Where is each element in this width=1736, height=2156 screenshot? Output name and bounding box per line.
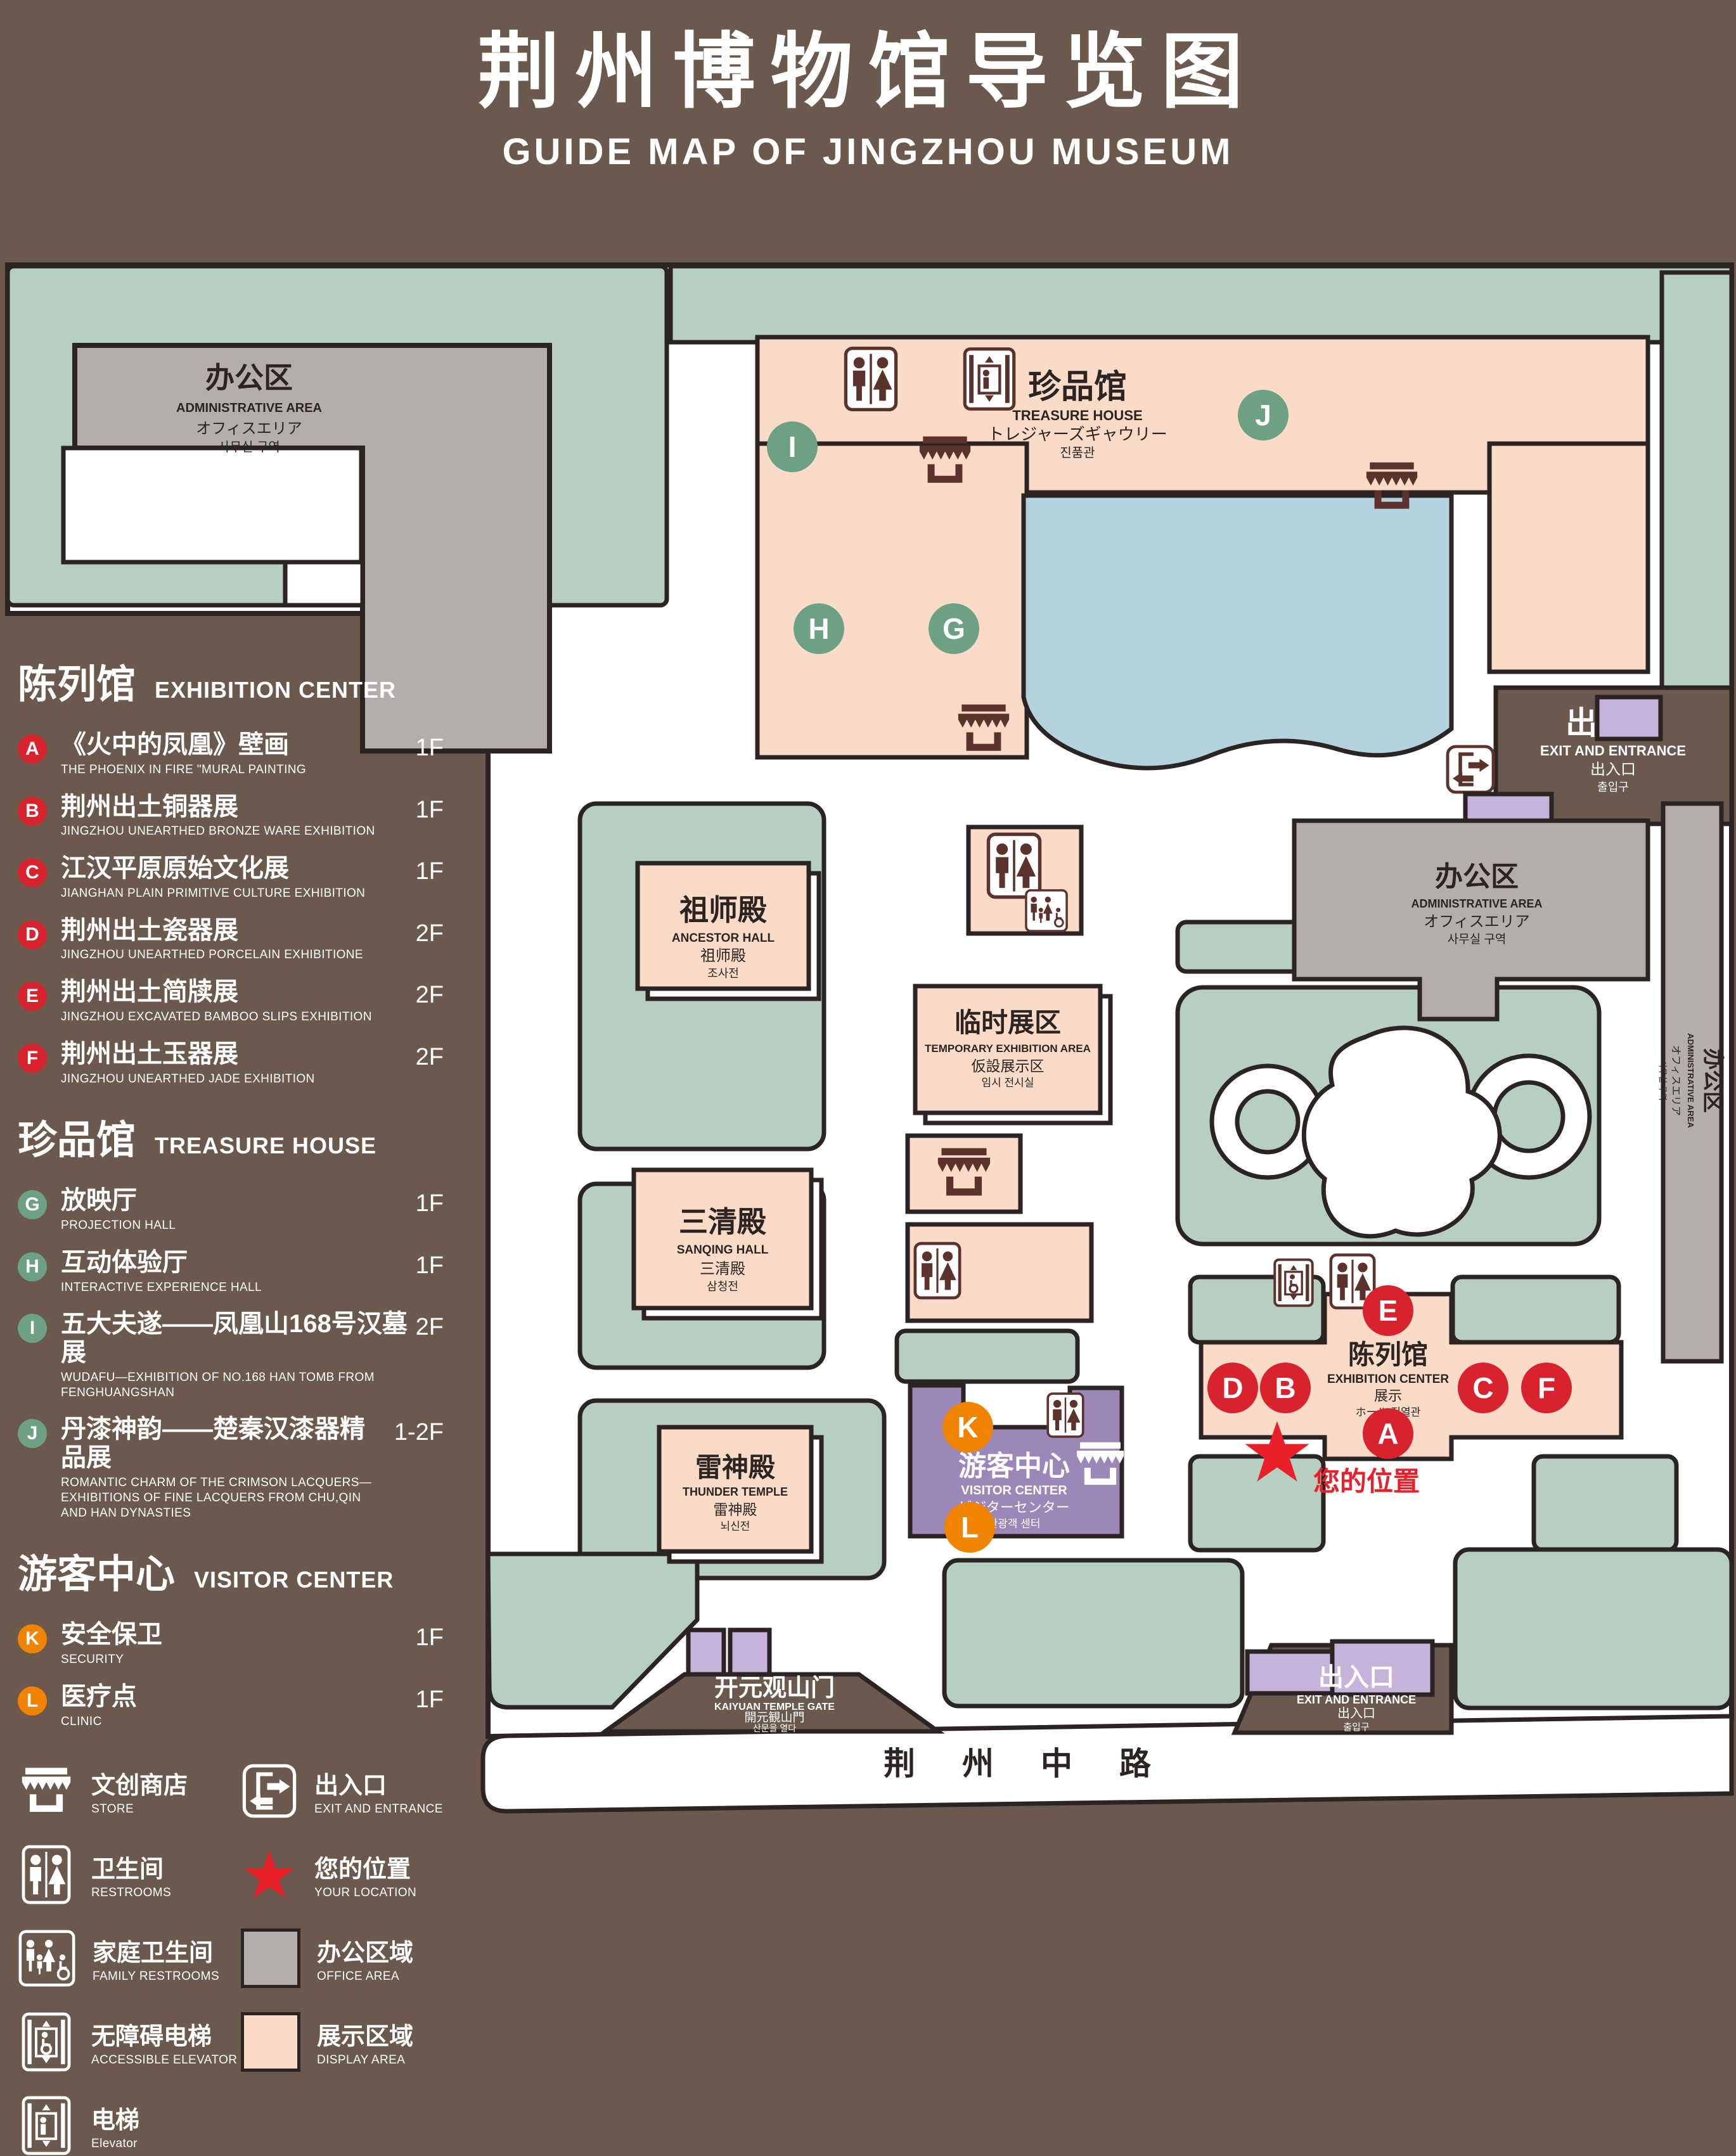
temp-exhibition-label-cn: 临时展区 (955, 1008, 1061, 1037)
marker-badge: F (18, 1044, 47, 1073)
item-cn: 荆州出土玉器展 (61, 1040, 409, 1068)
exit-s-label-en: EXIT AND ENTRANCE (1297, 1693, 1416, 1706)
legend-section-treasure-house: 珍品馆 TREASURE HOUSE (18, 1108, 444, 1165)
building-thunder-temple: 雷神殿 THUNDER TEMPLE 雷神殿 뇌신전 (659, 1427, 821, 1562)
building-restrooms-mid (968, 827, 1081, 934)
exhibition-center-label-en: EXHIBITION CENTER (1327, 1373, 1449, 1386)
legend-section-visitor-center: 游客中心 VISITOR CENTER (18, 1542, 444, 1599)
item-cn: 江汉平原原始文化展 (61, 854, 409, 883)
item-en: INTERACTIVE EXPERIENCE HALL (61, 1280, 409, 1295)
legend-symbols: 文创商店 STORE 出入口 EXIT AND ENTRANCE 卫生间 RES… (18, 1761, 444, 2156)
symbol-en: EXIT AND ENTRANCE (314, 1802, 443, 1816)
restroom-icon (915, 1243, 960, 1298)
symbol-en: FAMILY RESTROOMS (93, 1970, 219, 1984)
restroom-icon (845, 349, 896, 410)
section-title-cn: 珍品馆 (18, 1108, 136, 1165)
item-floor: 2F (409, 1314, 444, 1341)
item-en: JINGZHOU UNEARTHED PORCELAIN EXHIBITIONE (61, 947, 409, 963)
item-en: JINGZHOU UNEARTHED JADE EXHIBITION (61, 1072, 409, 1087)
item-en: THE PHOENIX IN FIRE "MURAL PAINTING (61, 762, 409, 778)
lawn-gate-right (944, 1560, 1242, 1706)
item-en: ROMANTIC CHARM OF THE CRIMSON LACQUERS—E… (61, 1475, 388, 1520)
gate-label-cn: 开元观山门 (714, 1675, 835, 1702)
item-floor: 1-2F (388, 1419, 444, 1446)
admin-nw-label-kr: 사무실 구역 (218, 440, 280, 454)
entrance-ne-label-kr: 출입구 (1597, 781, 1629, 793)
symbol-cn: 办公区域 (317, 1933, 413, 1968)
admin-e-label-jp: オフィスエリア (1424, 913, 1530, 930)
item-floor: 1F (409, 858, 444, 885)
location-star-icon (241, 1844, 298, 1905)
admin-e-label-kr: 사무실 구역 (1448, 932, 1507, 946)
legend-item-F: F 荆州出土玉器展 JINGZHOU UNEARTHED JADE EXHIBI… (18, 1040, 444, 1087)
exit-s-label-kr: 출입구 (1343, 1722, 1369, 1733)
item-en: WUDAFU—EXHIBITION OF NO.168 HAN TOMB FRO… (61, 1370, 409, 1401)
item-cn: 荆州出土瓷器展 (61, 916, 409, 945)
admin-e-label-en: ADMINISTRATIVE AREA (1411, 897, 1543, 910)
symbol-cn: 家庭卫生间 (93, 1933, 219, 1968)
treasure-house-label-kr: 진품관 (1060, 446, 1095, 460)
building-ancestor-hall: 祖师殿 ANCESTOR HALL 祖师殿 조사전 (638, 863, 819, 999)
thunder-temple-label-kr: 뇌신전 (721, 1520, 750, 1532)
accessible-elevator-icon (1275, 1260, 1312, 1306)
legend-symbol-accessible-elevator: 无障碍电梯 ACCESSIBLE ELEVATOR (18, 2012, 241, 2072)
courtyard-nw-2 (285, 562, 363, 605)
symbol-cn: 展示区域 (317, 2017, 413, 2051)
symbol-en: STORE (91, 1802, 188, 1816)
item-floor: 1F (409, 1624, 444, 1652)
lake (1024, 496, 1451, 768)
item-cn: 荆州出土铜器展 (61, 793, 409, 821)
symbol-cn: 出入口 (314, 1766, 443, 1800)
admin-strip-label-kr: 사무실 구역 (1658, 1060, 1668, 1100)
ancestor-hall-label-cn: 祖师殿 (679, 894, 767, 927)
admin-strip-label-cn: 办公区 (1701, 1048, 1725, 1113)
display-area-swatch (241, 2012, 300, 2072)
item-cn: 医疗点 (61, 1683, 409, 1711)
svg-text:G: G (942, 612, 965, 645)
marker-badge: A (18, 735, 47, 764)
symbol-cn: 您的位置 (314, 1849, 416, 1884)
ancestor-hall-label-kr: 조사전 (707, 967, 739, 980)
lawn-top-strip (671, 266, 1732, 342)
sanqing-hall-label-cn: 三清殿 (679, 1205, 766, 1238)
symbol-en: RESTROOMS (91, 1886, 171, 1900)
courtyard-nw (63, 448, 361, 562)
entrance-ne-label-jp: 出入口 (1590, 761, 1636, 778)
ancestor-hall-label-jp: 祖师殿 (700, 947, 746, 965)
title-chinese: 荆州博物馆导览图 (0, 5, 1736, 124)
svg-text:E: E (1379, 1294, 1398, 1327)
item-floor: 2F (409, 982, 444, 1009)
section-title-en: EXHIBITION CENTER (155, 677, 396, 703)
marker-badge: G (18, 1190, 47, 1219)
item-cn: 五大夫遂——凤凰山168号汉墓展 (61, 1310, 409, 1367)
admin-strip-label-en: ADMINISTRATIVE AREA (1686, 1033, 1695, 1128)
section-title-cn: 陈列馆 (18, 652, 136, 709)
legend-section-exhibition-center: 陈列馆 EXHIBITION CENTER (18, 652, 444, 709)
admin-nw-label-en: ADMINISTRATIVE AREA (176, 401, 322, 415)
item-floor: 1F (409, 1252, 444, 1280)
symbol-en: ACCESSIBLE ELEVATOR (91, 2053, 237, 2067)
marker-E: E (1363, 1285, 1413, 1336)
section-title-en: VISITOR CENTER (194, 1567, 394, 1593)
treasure-house-label-en: TREASURE HOUSE (1012, 407, 1142, 423)
legend-item-H: H 互动体验厅 INTERACTIVE EXPERIENCE HALL 1F (18, 1248, 444, 1295)
exit-icon (241, 1761, 298, 1821)
marker-badge: D (18, 920, 47, 949)
legend-item-K: K 安全保卫 SECURITY 1F (18, 1620, 444, 1667)
building-restrooms-low (908, 1224, 1091, 1321)
item-cn: 《火中的凤凰》壁画 (61, 731, 409, 759)
treasure-house-label-jp: トレジャーズギャウリー (987, 425, 1167, 444)
elevator-icon (965, 349, 1013, 409)
restroom-icon (18, 1844, 75, 1905)
gate-label-kr: 산문을 열다 (753, 1723, 796, 1733)
item-floor: 1F (409, 735, 444, 762)
symbol-cn: 卫生间 (91, 1849, 171, 1884)
legend-item-C: C 江汉平原原始文化展 JIANGHAN PLAIN PRIMITIVE CUL… (18, 854, 444, 901)
exit-south: 出入口 EXIT AND ENTRANCE 出入口 출입구 (1235, 1641, 1451, 1733)
sanqing-hall-label-kr: 삼청전 (707, 1280, 738, 1293)
sanqing-hall-label-jp: 三清殿 (700, 1261, 745, 1278)
your-location-label: 您的位置 (1313, 1466, 1420, 1496)
restroom-icon (989, 835, 1040, 897)
legend-item-A: A 《火中的凤凰》壁画 THE PHOENIX IN FIRE "MURAL P… (18, 731, 444, 778)
visitor-center-label-kr: 관광객 센터 (988, 1518, 1041, 1530)
marker-badge: L (18, 1686, 47, 1716)
lawn-ne (1662, 273, 1732, 724)
symbol-en: Elevator (91, 2137, 139, 2151)
legend: 陈列馆 EXHIBITION CENTER A 《火中的凤凰》壁画 THE PH… (18, 631, 444, 2156)
admin-nw-label-jp: オフィスエリア (196, 420, 302, 437)
marker-G: G (929, 603, 979, 654)
item-en: JIANGHAN PLAIN PRIMITIVE CULTURE EXHIBIT… (61, 886, 409, 901)
marker-D: D (1207, 1363, 1258, 1413)
sanqing-hall-label-en: SANQING HALL (677, 1243, 769, 1257)
building-admin-strip: 办公区 ADMINISTRATIVE AREA オフィスエリア 사무실 구역 (1658, 804, 1725, 1361)
legend-item-E: E 荆州出土简牍展 JINGZHOU EXCAVATED BAMBOO SLIP… (18, 978, 444, 1025)
restroom-icon (1048, 1394, 1083, 1437)
symbol-en: DISPLAY AREA (317, 2053, 413, 2067)
marker-I: I (767, 421, 818, 472)
marker-A: A (1363, 1408, 1413, 1459)
item-floor: 1F (409, 797, 444, 824)
symbol-cn: 电梯 (91, 2100, 139, 2135)
marker-H: H (794, 603, 844, 654)
symbol-en: OFFICE AREA (317, 1970, 413, 1984)
legend-item-I: I 五大夫遂——凤凰山168号汉墓展 WUDAFU—EXHIBITION OF … (18, 1310, 444, 1400)
item-en: PROJECTION HALL (61, 1218, 409, 1233)
visitor-center-label-en: VISITOR CENTER (961, 1484, 1067, 1498)
item-cn: 丹漆神韵——楚秦汉漆器精品展 (61, 1415, 388, 1472)
item-cn: 放映厅 (61, 1186, 409, 1215)
marker-K: K (942, 1402, 993, 1453)
store-icon (18, 1761, 75, 1821)
item-en: SECURITY (61, 1652, 409, 1667)
item-en: JINGZHOU EXCAVATED BAMBOO SLIPS EXHIBITI… (61, 1010, 409, 1025)
family-restroom-icon (18, 1928, 76, 1989)
legend-symbol-elevator: 电梯 Elevator (18, 2095, 241, 2156)
item-floor: 2F (409, 920, 444, 947)
marker-L: L (944, 1502, 995, 1553)
legend-symbol-display-area: 展示区域 DISPLAY AREA (241, 2012, 444, 2072)
lawn-se (1455, 1550, 1732, 1708)
exit-s-label-cn: 出入口 (1318, 1664, 1394, 1691)
item-cn: 互动体验厅 (61, 1248, 409, 1277)
svg-text:C: C (1472, 1371, 1493, 1404)
visitor-center-label-cn: 游客中心 (958, 1451, 1070, 1482)
temp-exhibition-label-kr: 임시 전시실 (982, 1077, 1034, 1089)
garden-island-east (1495, 1082, 1563, 1151)
exhibition-center-label-jp: 展示 (1374, 1388, 1402, 1404)
legend-symbol-store: 文创商店 STORE (18, 1761, 241, 1821)
svg-text:L: L (961, 1511, 979, 1544)
legend-item-J: J 丹漆神韵——楚秦汉漆器精品展 ROMANTIC CHARM OF THE C… (18, 1415, 444, 1520)
item-cn: 荆州出土简牍展 (61, 978, 409, 1006)
symbol-en: YOUR LOCATION (314, 1886, 416, 1900)
admin-nw-label-cn: 办公区 (205, 361, 293, 394)
lawn-excenter-notch-right (1453, 1277, 1619, 1342)
marker-badge: H (18, 1252, 47, 1281)
legend-symbol-office-area: 办公区域 OFFICE AREA (241, 1928, 444, 1989)
svg-text:F: F (1538, 1371, 1555, 1404)
accessible-elevator-icon (18, 2012, 75, 2072)
marker-badge: I (18, 1314, 47, 1343)
legend-symbol-your-location: 您的位置 YOUR LOCATION (241, 1844, 444, 1905)
legend-item-B: B 荆州出土铜器展 JINGZHOU UNEARTHED BRONZE WARE… (18, 793, 444, 840)
admin-strip-label-jp: オフィスエリア (1670, 1045, 1681, 1116)
exit-s-label-jp: 出入口 (1337, 1706, 1375, 1721)
svg-text:H: H (808, 612, 829, 645)
marker-F: F (1521, 1363, 1572, 1413)
legend-item-G: G 放映厅 PROJECTION HALL 1F (18, 1186, 444, 1233)
temp-exhibition-label-jp: 仮設展示区 (972, 1058, 1045, 1074)
thunder-temple-label-jp: 雷神殿 (714, 1501, 757, 1518)
lawn-excenter-bottom-left (1190, 1456, 1323, 1550)
entrance-ne-label-en: EXIT AND ENTRANCE (1540, 743, 1686, 759)
item-floor: 1F (409, 1190, 444, 1217)
marker-badge: C (18, 858, 47, 887)
legend-symbol-family-restrooms: 家庭卫生间 FAMILY RESTROOMS (18, 1928, 241, 1989)
page-title: 荆州博物馆导览图 GUIDE MAP OF JINGZHOU MUSEUM (0, 5, 1736, 173)
marker-badge: J (18, 1419, 47, 1448)
svg-text:B: B (1275, 1371, 1296, 1404)
title-english: GUIDE MAP OF JINGZHOU MUSEUM (0, 131, 1736, 173)
lawn-excenter-bottom-right (1534, 1456, 1676, 1550)
item-en: JINGZHOU UNEARTHED BRONZE WARE EXHIBITIO… (61, 824, 409, 839)
lawn-above-visitor-center (897, 1331, 1077, 1382)
marker-badge: K (18, 1624, 47, 1653)
item-floor: 1F (409, 1686, 444, 1714)
family-restroom-icon (1026, 890, 1067, 931)
thunder-temple-label-en: THUNDER TEMPLE (683, 1485, 788, 1498)
office-area-swatch (241, 1928, 300, 1989)
item-cn: 安全保卫 (61, 1620, 409, 1649)
symbol-cn: 无障碍电梯 (91, 2017, 237, 2051)
item-en: CLINIC (61, 1714, 409, 1729)
section-title-en: TREASURE HOUSE (155, 1133, 376, 1159)
road-label: 荆 州 中 路 (884, 1746, 1170, 1781)
elevator-icon (18, 2095, 75, 2156)
marker-J: J (1238, 390, 1289, 440)
gate-label-jp: 開元観山門 (744, 1710, 804, 1724)
section-title-cn: 游客中心 (18, 1542, 175, 1599)
temp-exhibition-label-en: TEMPORARY EXHIBITION AREA (925, 1043, 1091, 1055)
legend-item-D: D 荆州出土瓷器展 JINGZHOU UNEARTHED PORCELAIN E… (18, 916, 444, 963)
marker-C: C (1458, 1363, 1508, 1413)
legend-item-L: L 医疗点 CLINIC 1F (18, 1683, 444, 1729)
building-temporary-exhibition: 临时展区 TEMPORARY EXHIBITION AREA 仮設展示区 임시 … (915, 986, 1110, 1123)
treasure-house-label-cn: 珍品馆 (1028, 369, 1127, 406)
marker-badge: B (18, 797, 47, 826)
exhibition-center-label-cn: 陈列馆 (1348, 1340, 1428, 1370)
thunder-temple-label-cn: 雷神殿 (695, 1453, 775, 1482)
exit-icon (1448, 747, 1493, 792)
svg-text:D: D (1222, 1371, 1243, 1404)
marker-badge: E (18, 982, 47, 1011)
svg-text:J: J (1255, 399, 1271, 432)
svg-text:I: I (788, 430, 797, 463)
admin-e-label-cn: 办公区 (1435, 861, 1519, 892)
legend-symbol-exit: 出入口 EXIT AND ENTRANCE (241, 1761, 444, 1821)
item-floor: 2F (409, 1044, 444, 1071)
building-store-mid (908, 1136, 1020, 1212)
symbol-cn: 文创商店 (91, 1766, 188, 1800)
building-sanqing-hall: 三清殿 SANQING HALL 三清殿 삼청전 (634, 1170, 821, 1318)
garden-island-west (1237, 1091, 1298, 1152)
legend-symbol-restrooms: 卫生间 RESTROOMS (18, 1844, 241, 1905)
svg-text:A: A (1377, 1417, 1398, 1450)
ancestor-hall-label-en: ANCESTOR HALL (672, 932, 775, 945)
marker-B: B (1260, 1363, 1311, 1413)
svg-text:K: K (957, 1411, 978, 1444)
